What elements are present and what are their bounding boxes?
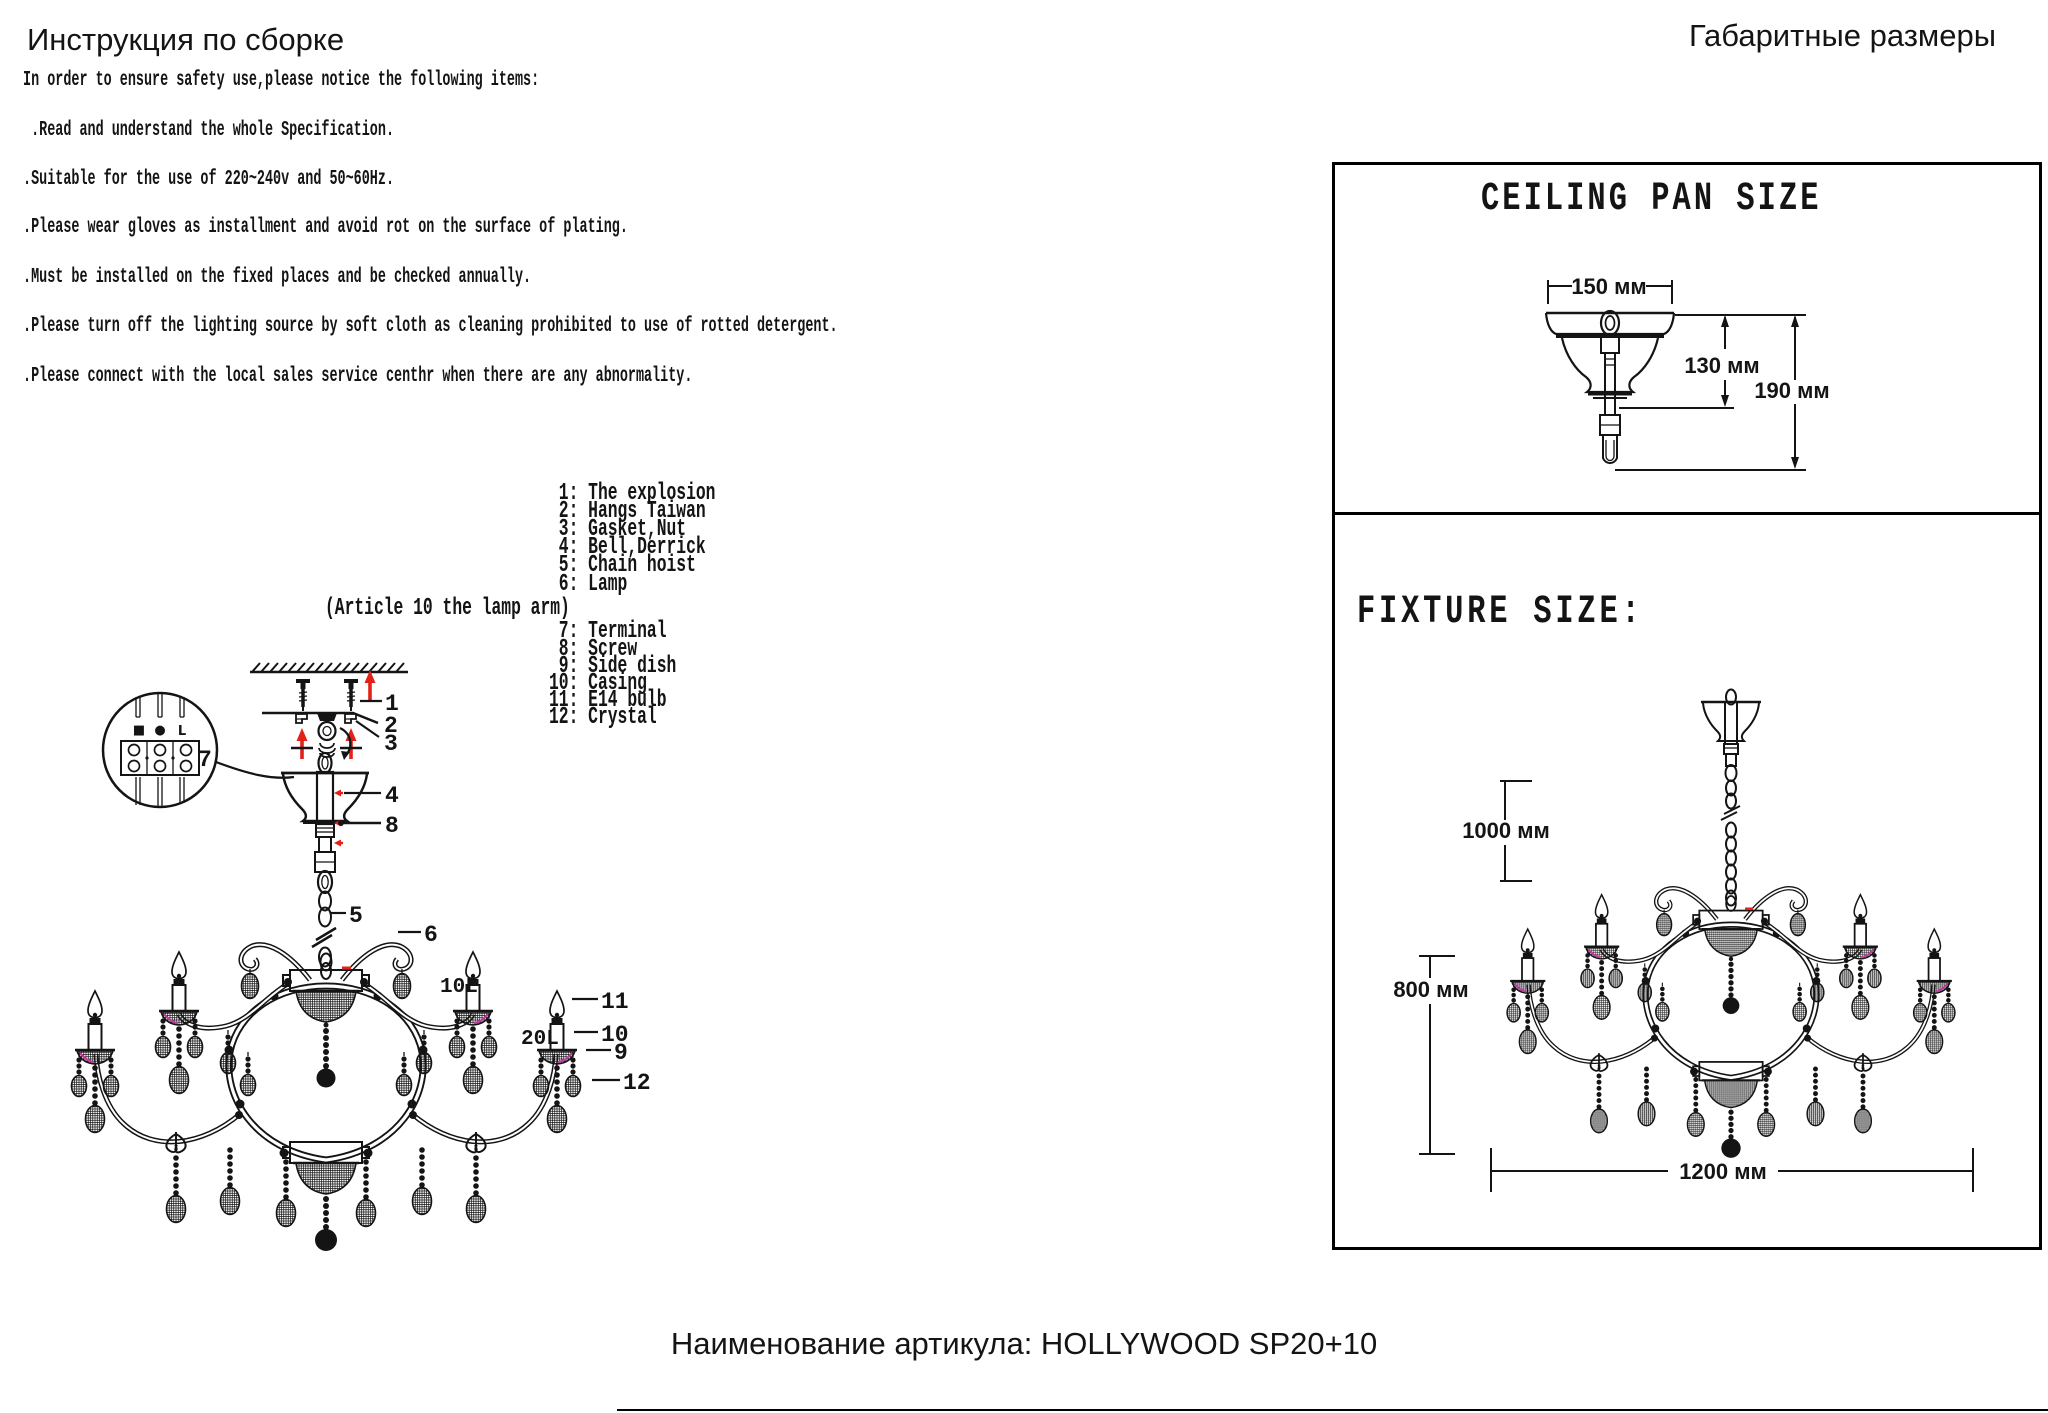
callout-11: 11 bbox=[601, 989, 629, 1015]
safety-item-6: .Please connect with the local sales ser… bbox=[23, 365, 692, 388]
exploded-diagram: 1 2 3 ■ ● L 7 bbox=[40, 630, 660, 1290]
chain-hoist bbox=[312, 892, 336, 980]
safety-item-1: .Read and understand the whole Specifica… bbox=[23, 119, 394, 142]
instruction-sheet: Инструкция по сборке Габаритные размеры … bbox=[0, 0, 2048, 1413]
safety-intro: In order to ensure safety use,please not… bbox=[23, 69, 539, 92]
chandelier-drawing bbox=[72, 945, 581, 1251]
dim-1000: 1000 мм bbox=[1462, 818, 1550, 843]
tier-label-upper: 10L bbox=[440, 976, 478, 999]
terminal-detail: ■ ● L 7 bbox=[103, 693, 217, 807]
callout-8: 8 bbox=[385, 813, 399, 839]
safety-item-3: .Please wear gloves as installment and a… bbox=[23, 216, 628, 239]
dim-150: 150 мм bbox=[1571, 274, 1646, 299]
callout-7: 7 bbox=[198, 747, 212, 773]
parts-list-note: (Article 10 the lamp arm) bbox=[325, 595, 570, 622]
safety-item-5: .Please turn off the lighting source by … bbox=[23, 315, 838, 338]
dimensions-panel: CEILING PAN SIZE FIXTURE SIZE: bbox=[1332, 162, 2042, 1250]
tier-label-lower: 20L bbox=[521, 1028, 559, 1051]
fixture-dimensions: 1000 мм 800 мм 1200 мм bbox=[1393, 781, 1973, 1192]
terminal-mark-l: L bbox=[178, 724, 186, 739]
safety-item-4: .Must be installed on the fixed places a… bbox=[23, 266, 531, 289]
ceiling-pan-drawing bbox=[1546, 311, 1674, 463]
rotate-arrow-head bbox=[341, 751, 350, 760]
dim-190: 190 мм bbox=[1754, 378, 1829, 403]
dimensions-drawing: 150 мм 130 мм 190 мм bbox=[1335, 165, 2039, 1247]
bottom-rule bbox=[617, 1409, 2048, 1411]
terminal-mark-earth: ● bbox=[154, 723, 165, 738]
parts-list-item: 6:Lamp bbox=[549, 571, 627, 598]
dim-1200: 1200 мм bbox=[1679, 1159, 1767, 1184]
hanging-ring bbox=[319, 722, 336, 740]
fixture-chain bbox=[1721, 781, 1740, 906]
ceiling-hatch bbox=[250, 663, 408, 672]
callout-3: 3 bbox=[384, 731, 398, 757]
safety-item-2: .Suitable for the use of 220~240v and 50… bbox=[23, 168, 394, 191]
article-name: Наименование артикула: HOLLYWOOD SP20+10 bbox=[0, 1326, 2048, 1362]
callout-5: 5 bbox=[349, 903, 363, 929]
terminal-mark-n: ■ bbox=[133, 723, 145, 738]
callout-6: 6 bbox=[424, 922, 438, 948]
page-title: Инструкция по сборке bbox=[27, 22, 344, 58]
ceiling-pan-dimensions: 150 мм 130 мм 190 мм bbox=[1548, 274, 1830, 470]
dimensions-title: Габаритные размеры bbox=[1689, 18, 1996, 54]
fixture-drawing bbox=[1507, 690, 1955, 1158]
callout-12: 12 bbox=[623, 1070, 651, 1096]
dim-130: 130 мм bbox=[1684, 353, 1759, 378]
callout-9: 9 bbox=[614, 1040, 628, 1066]
screw-callout-icon bbox=[338, 820, 344, 826]
dim-800: 800 мм bbox=[1393, 977, 1468, 1002]
callout-4: 4 bbox=[385, 783, 399, 809]
